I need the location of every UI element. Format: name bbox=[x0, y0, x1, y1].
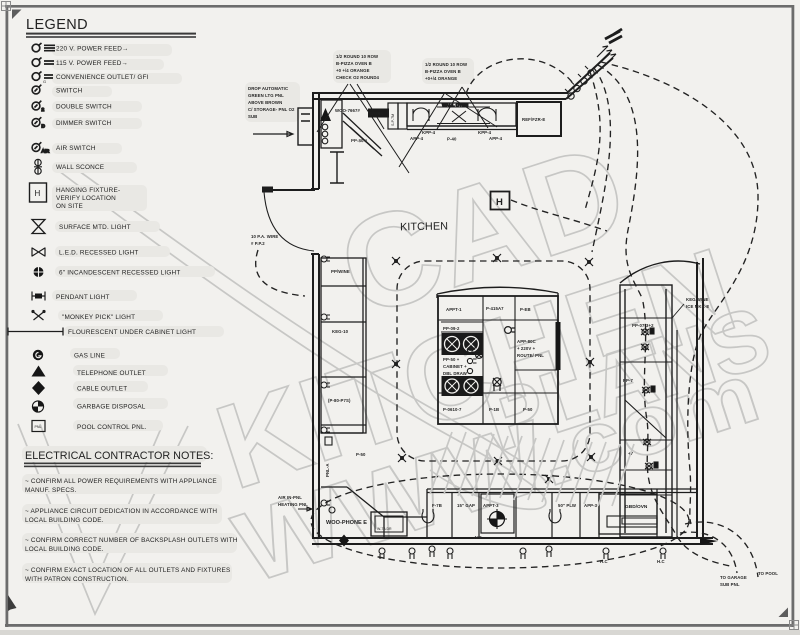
svg-text:WALL SCONCE: WALL SCONCE bbox=[56, 164, 104, 171]
svg-text:PP-09-2: PP-09-2 bbox=[443, 326, 460, 331]
svg-text:PP-80-1: PP-80-1 bbox=[351, 138, 368, 143]
svg-text:220 V. POWER FEED→: 220 V. POWER FEED→ bbox=[56, 46, 129, 53]
svg-text:TO POOL: TO POOL bbox=[758, 571, 778, 576]
svg-text:P-0610-7: P-0610-7 bbox=[443, 407, 462, 412]
svg-text:PNL: PNL bbox=[35, 425, 42, 429]
svg-text:(P-80-P7S): (P-80-P7S) bbox=[328, 398, 351, 403]
svg-text:MANUF. SPECS.: MANUF. SPECS. bbox=[25, 487, 77, 494]
svg-text:WOO-PHONE E: WOO-PHONE E bbox=[326, 520, 367, 526]
svg-text:G: G bbox=[43, 79, 46, 84]
svg-text:H.C: H.C bbox=[600, 559, 608, 564]
svg-text:FLOURESCENT UNDER CABINET LIGH: FLOURESCENT UNDER CABINET LIGHT bbox=[68, 329, 196, 336]
svg-text:6" INCANDESCENT RECESSED LIGHT: 6" INCANDESCENT RECESSED LIGHT bbox=[59, 270, 180, 277]
svg-text:CABINET +: CABINET + bbox=[443, 364, 467, 369]
svg-text:PP-7: PP-7 bbox=[623, 378, 633, 383]
svg-text:# P.P.2: # P.P.2 bbox=[251, 241, 265, 246]
svg-text:GARBAGE DISPOSAL: GARBAGE DISPOSAL bbox=[77, 404, 146, 411]
svg-text:APPT-3: APPT-3 bbox=[483, 503, 499, 508]
svg-text:TO GARAGE: TO GARAGE bbox=[720, 575, 747, 580]
svg-text:KPP-4: KPP-4 bbox=[478, 130, 492, 135]
svg-text:PENDANT LIGHT: PENDANT LIGHT bbox=[56, 294, 110, 301]
svg-text:GREEN LTG PNL: GREEN LTG PNL bbox=[248, 93, 284, 98]
svg-text:C/ STORAGE- PNL O2: C/ STORAGE- PNL O2 bbox=[248, 107, 295, 112]
svg-text:ABOVE BROWN: ABOVE BROWN bbox=[248, 100, 282, 105]
svg-text:P-1B: P-1B bbox=[489, 407, 499, 412]
svg-text:S-P-7M: S-P-7M bbox=[391, 114, 395, 126]
svg-text:WALL OVEN: WALL OVEN bbox=[442, 103, 468, 108]
svg-text:APP-80C: APP-80C bbox=[517, 339, 536, 344]
svg-text:APPT-1: APPT-1 bbox=[446, 307, 462, 312]
svg-text:50" PLW: 50" PLW bbox=[558, 503, 577, 508]
svg-text:L.E.D. RECESSED LIGHT: L.E.D. RECESSED LIGHT bbox=[59, 250, 139, 257]
svg-text:H.C: H.C bbox=[657, 559, 665, 564]
svg-text:115 V. POWER FEED→: 115 V. POWER FEED→ bbox=[56, 60, 128, 67]
svg-text:AIR: AIR bbox=[42, 149, 50, 154]
svg-text:CHECK O2 ROUND4: CHECK O2 ROUND4 bbox=[336, 75, 380, 80]
svg-text:TELEPHONE OUTLET: TELEPHONE OUTLET bbox=[77, 370, 146, 377]
svg-text:~ CONFIRM EXACT LOCATION OF AL: ~ CONFIRM EXACT LOCATION OF ALL OUTLETS … bbox=[25, 567, 230, 574]
svg-text:CONVENIENCE OUTLET/ GFI: CONVENIENCE OUTLET/ GFI bbox=[56, 74, 149, 81]
svg-text:VERIFY LOCATION: VERIFY LOCATION bbox=[56, 195, 116, 202]
svg-text:SURFACE MTD. LIGHT: SURFACE MTD. LIGHT bbox=[59, 224, 131, 231]
svg-text:SWITCH: SWITCH bbox=[56, 88, 83, 95]
svg-text:DOUBLE SWITCH: DOUBLE SWITCH bbox=[56, 104, 112, 111]
svg-text:P-415A7: P-415A7 bbox=[486, 306, 504, 311]
svg-text:LOCAL BUILDING CODE.: LOCAL BUILDING CODE. bbox=[25, 517, 104, 524]
svg-text:REF/FZR-E: REF/FZR-E bbox=[522, 117, 545, 122]
svg-text:AIR SWITCH: AIR SWITCH bbox=[56, 145, 96, 152]
svg-text:KPP-4: KPP-4 bbox=[422, 130, 436, 135]
svg-text:AIR IN-PNL: AIR IN-PNL bbox=[278, 495, 302, 500]
svg-text:KEG/WINE: KEG/WINE bbox=[686, 297, 709, 302]
svg-text:CABLE OUTLET: CABLE OUTLET bbox=[77, 386, 127, 393]
svg-text:+0+/4 ORANGE: +0+/4 ORANGE bbox=[425, 76, 457, 81]
svg-text:1/2 ROUND 10 ROW: 1/2 ROUND 10 ROW bbox=[425, 62, 468, 67]
svg-text:DROP AUTOMATIC: DROP AUTOMATIC bbox=[248, 86, 288, 91]
svg-text:+ 220V +: + 220V + bbox=[517, 346, 536, 351]
svg-text:WITH PATRON CONSTRUCTION.: WITH PATRON CONSTRUCTION. bbox=[25, 576, 129, 583]
svg-text:B-PIZZA OVEN B: B-PIZZA OVEN B bbox=[336, 61, 372, 66]
svg-text:P-50: P-50 bbox=[356, 452, 366, 457]
svg-text:DBL DRAW: DBL DRAW bbox=[443, 371, 468, 376]
svg-text:SPKRS: SPKRS bbox=[370, 111, 384, 116]
svg-text:"MONKEY PICK" LIGHT: "MONKEY PICK" LIGHT bbox=[62, 314, 135, 321]
svg-text:~ CONFIRM CORRECT NUMBER OF BA: ~ CONFIRM CORRECT NUMBER OF BACKSPLASH O… bbox=[25, 537, 238, 544]
svg-text:PNL-A: PNL-A bbox=[325, 463, 330, 477]
svg-text:AIR: AIR bbox=[474, 535, 482, 540]
svg-text:LOCAL BUILDING CODE.: LOCAL BUILDING CODE. bbox=[25, 546, 104, 553]
svg-text:GAS LINE: GAS LINE bbox=[74, 353, 105, 360]
svg-text:PP-50 +: PP-50 + bbox=[443, 357, 460, 362]
svg-text:HANGING FIXTURE-: HANGING FIXTURE- bbox=[56, 187, 120, 194]
svg-text:P-50: P-50 bbox=[523, 407, 533, 412]
svg-text:H: H bbox=[35, 189, 41, 198]
svg-text:~ CONFIRM ALL POWER REQUIREMEN: ~ CONFIRM ALL POWER REQUIREMENTS WITH AP… bbox=[25, 478, 217, 485]
svg-text:~ APPLIANCE CIRCUIT DEDICATION: ~ APPLIANCE CIRCUIT DEDICATION IN ACCORD… bbox=[25, 508, 217, 515]
svg-text:B-PIZZA OVEN B: B-PIZZA OVEN B bbox=[425, 69, 461, 74]
svg-text:F-7B: F-7B bbox=[432, 503, 442, 508]
svg-text:ICE MKR-E: ICE MKR-E bbox=[686, 304, 709, 309]
svg-text:POOL CONTROL PNL.: POOL CONTROL PNL. bbox=[77, 424, 147, 431]
svg-text:1/2 ROUND 10 ROW: 1/2 ROUND 10 ROW bbox=[336, 54, 379, 59]
svg-text:KITCHEN: KITCHEN bbox=[400, 221, 448, 234]
svg-text:KEG-10: KEG-10 bbox=[332, 329, 349, 334]
svg-text:SUB PNL: SUB PNL bbox=[720, 582, 740, 587]
svg-text:APP-3: APP-3 bbox=[584, 503, 598, 508]
svg-text:P-40: P-40 bbox=[447, 137, 457, 142]
svg-text:GBD/OVN: GBD/OVN bbox=[625, 504, 648, 510]
svg-text:PP-07-3+2: PP-07-3+2 bbox=[632, 323, 654, 328]
svg-text:ON SITE: ON SITE bbox=[56, 203, 83, 210]
svg-text:APP-4: APP-4 bbox=[489, 136, 503, 141]
svg-text:ROUTE/ PNL: ROUTE/ PNL bbox=[517, 353, 544, 358]
svg-text:DIMMER SWITCH: DIMMER SWITCH bbox=[56, 120, 112, 127]
svg-text:2: 2 bbox=[42, 107, 45, 112]
svg-text:10 P.A. WIRE: 10 P.A. WIRE bbox=[251, 234, 278, 239]
svg-text:PP/WINE: PP/WINE bbox=[331, 269, 350, 274]
svg-text:H: H bbox=[496, 197, 503, 208]
svg-text:WOO-7667#: WOO-7667# bbox=[335, 108, 361, 113]
svg-text:ELECTRICAL CONTRACTOR NOTES:: ELECTRICAL CONTRACTOR NOTES: bbox=[25, 450, 213, 462]
svg-text:HEATING PNL: HEATING PNL bbox=[278, 502, 308, 507]
svg-text:SUB: SUB bbox=[248, 114, 257, 119]
svg-text:15" GAP: 15" GAP bbox=[457, 503, 475, 508]
svg-text:LEGEND: LEGEND bbox=[26, 17, 88, 33]
svg-text:+0 +/4 ORANGE: +0 +/4 ORANGE bbox=[336, 68, 370, 73]
svg-text:P-EB: P-EB bbox=[520, 307, 531, 312]
